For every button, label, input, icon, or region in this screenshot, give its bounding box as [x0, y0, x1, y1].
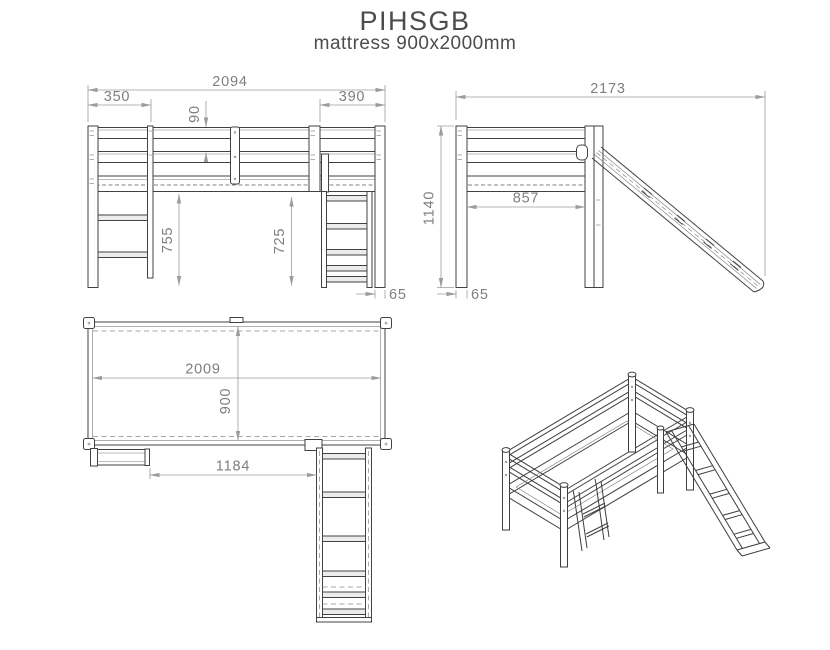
front-elevation-view: 2094 350 390 90 755 725 65: [88, 74, 407, 303]
iso-posts: [502, 372, 694, 567]
dim-overall-depth-label: 2173: [590, 81, 625, 97]
ladder-front: [98, 215, 148, 258]
slide-side: [577, 145, 764, 292]
iso-slide: [666, 424, 770, 556]
dim-post-width-side-label: 65: [471, 287, 489, 303]
dim-ladder-to-slide-label: 1184: [216, 459, 250, 475]
dim-overall-height-label: 1140: [422, 191, 438, 225]
dim-inner-length-label: 2009: [185, 362, 220, 378]
dim-inner-width-label: 857: [513, 191, 540, 207]
isometric-view: [502, 372, 770, 567]
bed-frame-plan: [84, 318, 392, 451]
plan-view: 2009 900 1184: [84, 318, 392, 623]
dim-underbed-left-label: 755: [160, 227, 176, 254]
dim-rail-gap-label: 90: [187, 105, 203, 123]
slide-plan: [317, 448, 372, 622]
technical-drawing-sheet: PIHSGB mattress 900x2000mm: [0, 0, 830, 650]
dim-underbed-right-label: 725: [272, 228, 288, 255]
dim-overall-width-label: 2094: [212, 74, 247, 90]
side-elevation-view: 2173 1140 857 65: [422, 81, 766, 303]
slide-front-projection: [322, 154, 373, 288]
dim-inner-width-plan-label: 900: [218, 388, 234, 415]
dim-slide-offset-label: 390: [339, 89, 366, 105]
dim-post-width-front-label: 65: [389, 287, 407, 303]
bed-frame-front: [88, 126, 385, 288]
drawing-svg: 2094 350 390 90 755 725 65: [0, 0, 830, 650]
ladder-plan: [91, 449, 150, 467]
dim-ladder-offset-label: 350: [104, 89, 131, 105]
